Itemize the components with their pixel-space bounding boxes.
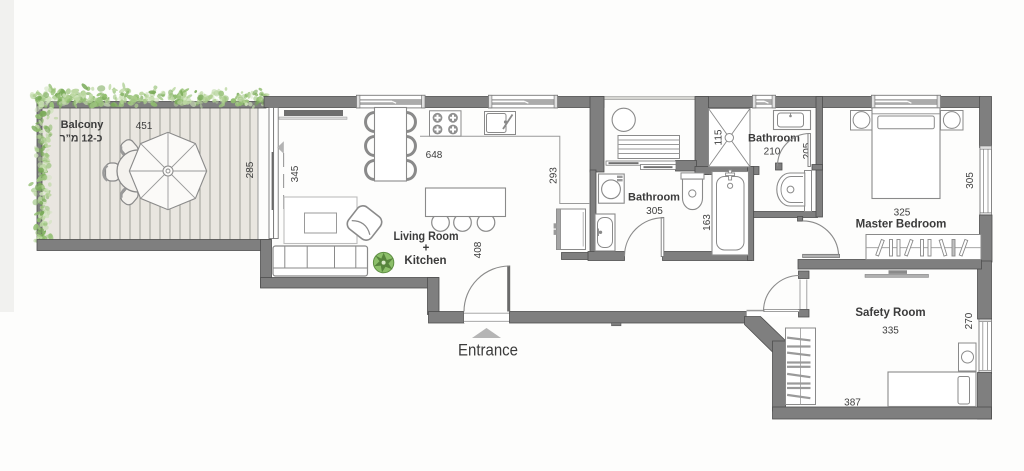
svg-text:210: 210 bbox=[764, 147, 781, 158]
svg-text:305: 305 bbox=[646, 206, 663, 217]
svg-text:Balcony: Balcony bbox=[61, 119, 105, 131]
svg-text:115: 115 bbox=[714, 129, 725, 145]
svg-text:293: 293 bbox=[549, 167, 560, 184]
svg-text:Entrance: Entrance bbox=[458, 341, 518, 360]
svg-text:205: 205 bbox=[802, 142, 813, 159]
svg-text:345: 345 bbox=[290, 165, 301, 182]
svg-text:163: 163 bbox=[702, 214, 713, 231]
svg-text:Master Bedroom: Master Bedroom bbox=[856, 219, 947, 231]
svg-text:648: 648 bbox=[426, 150, 443, 161]
svg-text:Safety Room: Safety Room bbox=[855, 307, 925, 319]
svg-text:כ-12 מ”ר: כ-12 מ”ר bbox=[60, 133, 103, 145]
svg-text:335: 335 bbox=[882, 326, 899, 337]
svg-text:387: 387 bbox=[844, 398, 861, 409]
svg-text:+: + bbox=[423, 243, 430, 255]
svg-text:Living Room: Living Room bbox=[394, 231, 459, 243]
svg-text:408: 408 bbox=[473, 241, 484, 258]
svg-text:325: 325 bbox=[894, 208, 911, 219]
svg-text:305: 305 bbox=[965, 172, 976, 189]
svg-text:Bathroom: Bathroom bbox=[628, 192, 680, 204]
svg-text:270: 270 bbox=[964, 312, 975, 329]
svg-text:451: 451 bbox=[136, 121, 153, 132]
svg-text:285: 285 bbox=[245, 161, 256, 178]
svg-text:Kitchen: Kitchen bbox=[404, 255, 446, 267]
